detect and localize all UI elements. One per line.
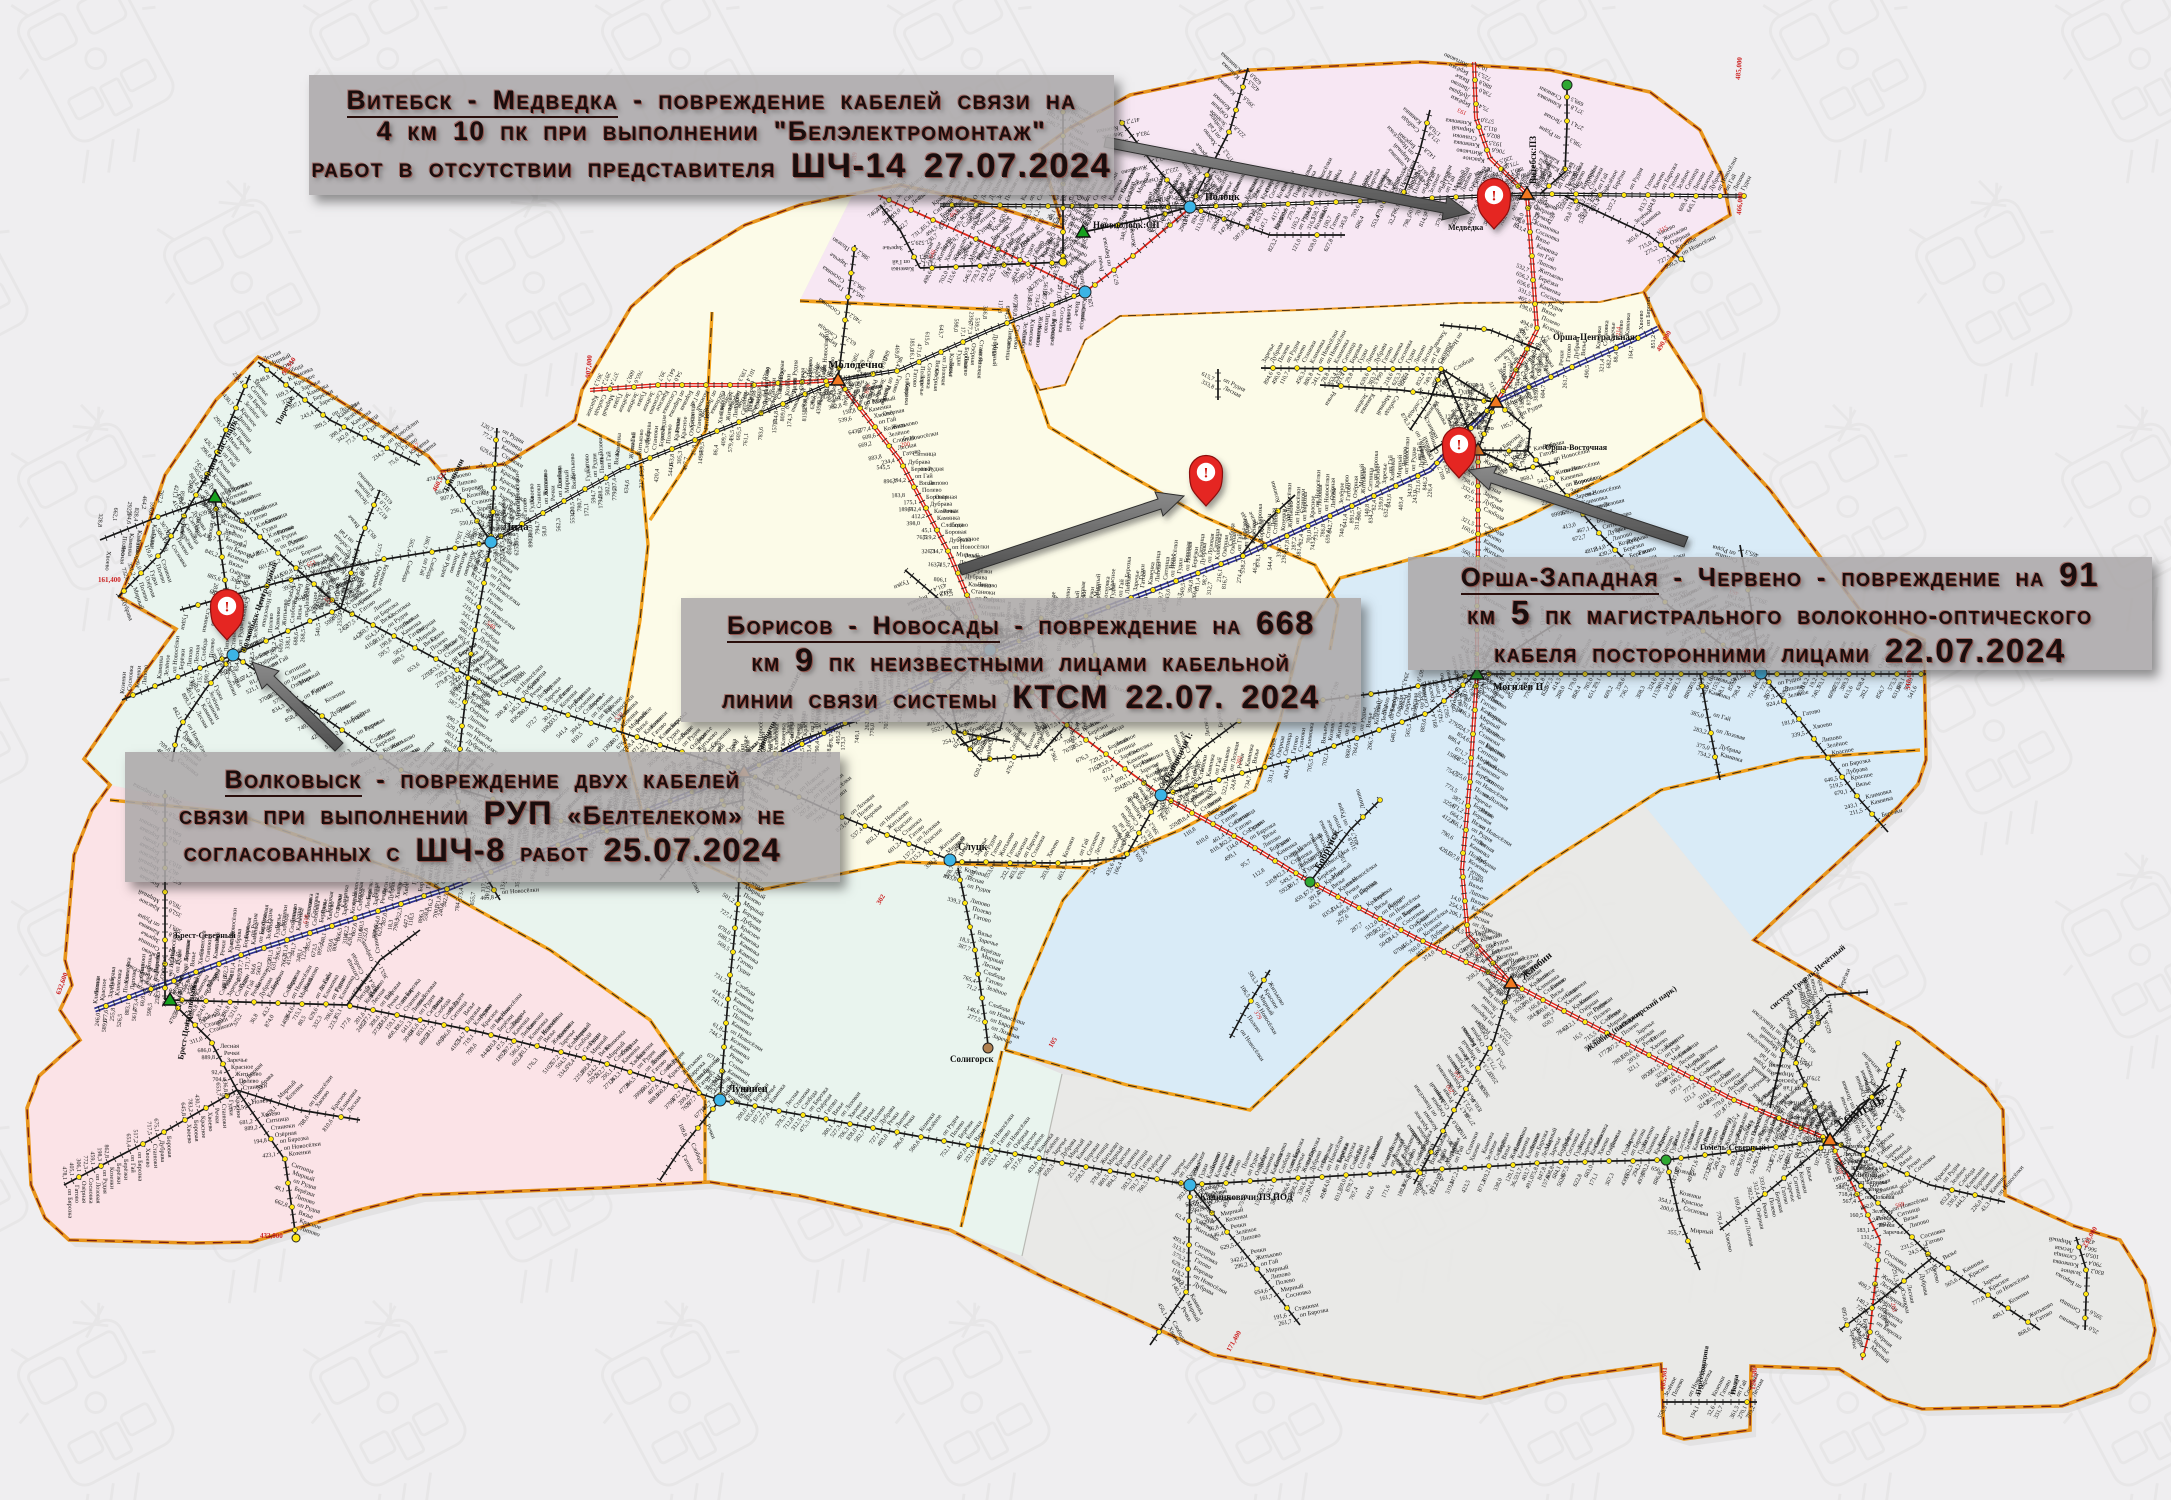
svg-text:!: ! (1204, 466, 1209, 482)
svg-text:!: ! (1492, 189, 1497, 205)
svg-text:!: ! (225, 600, 230, 616)
svg-text:!: ! (1457, 438, 1462, 454)
